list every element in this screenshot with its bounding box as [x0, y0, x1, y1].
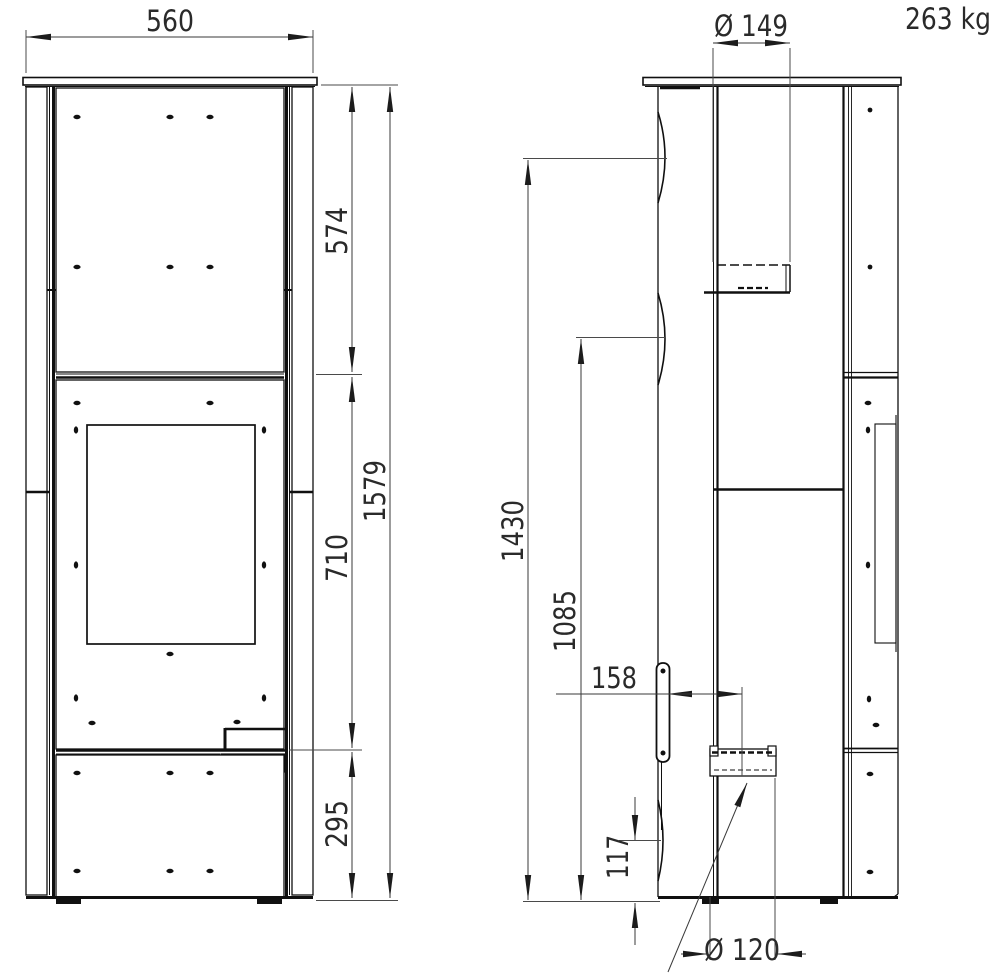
dim-label-1085: 1085 [548, 590, 582, 652]
front-upper-panel [56, 88, 284, 372]
dim-label-117: 117 [601, 835, 635, 879]
dim-label-1430: 1430 [496, 500, 530, 562]
front-bottom-panel [56, 755, 284, 897]
dim-label-574: 574 [320, 207, 354, 255]
dim-upper-height: 574 [320, 87, 354, 372]
bottom-outlet [710, 746, 776, 776]
side-top-plate [643, 78, 901, 86]
dim-label-120: Ø 120 [704, 933, 780, 967]
side-front-edge [658, 87, 665, 897]
front-foot-right [257, 899, 282, 904]
dim-label-158: 158 [591, 661, 637, 695]
front-left-pillar [26, 87, 56, 897]
side-foot-rear [820, 899, 838, 904]
front-view [23, 78, 317, 905]
dim-label-295: 295 [320, 800, 354, 848]
rear-recess [875, 424, 896, 643]
technical-drawing-canvas: 560 574 710 295 1579 [0, 0, 999, 974]
dim-label-1579: 1579 [358, 460, 392, 522]
dim-total-height: 1579 [358, 87, 392, 898]
front-curve-top [658, 112, 665, 203]
dim-width: 560 [26, 4, 313, 73]
side-door-handle [657, 663, 670, 762]
front-right-pillar [284, 87, 313, 897]
stove-dimension-drawing: 560 574 710 295 1579 [0, 0, 999, 974]
dim-upper-connector-height: 1085 [548, 338, 665, 901]
dim-inlet-height: 117 [601, 797, 661, 945]
dim-label-710: 710 [320, 534, 354, 582]
front-top-plate [23, 78, 317, 86]
front-foot-left [56, 899, 81, 904]
dim-base-height: 295 [320, 752, 354, 898]
dim-inlet-diameter: Ø 120 [668, 778, 806, 972]
front-curve-middle [658, 293, 665, 385]
dim-flue-diameter: Ø 149 [713, 9, 790, 262]
door-window [87, 425, 255, 644]
dim-label-560: 560 [146, 4, 194, 38]
dim-label-149: Ø 149 [714, 9, 788, 43]
dim-door-height: 710 [320, 377, 354, 748]
side-view [643, 78, 901, 905]
weight-label: 263 kg [905, 2, 991, 36]
